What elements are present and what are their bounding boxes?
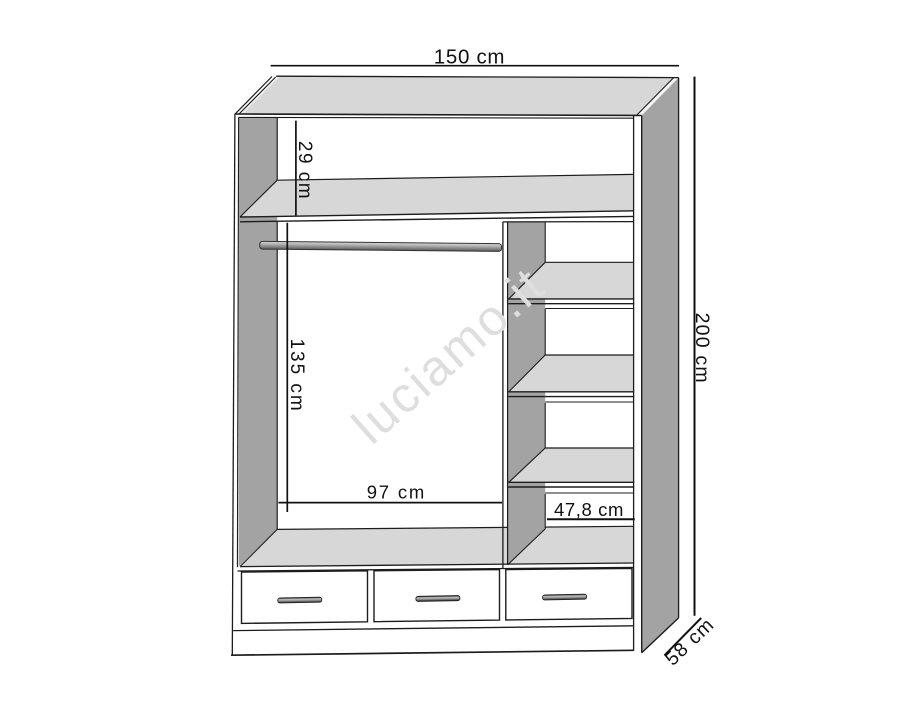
svg-text:150 cm: 150 cm [434, 45, 505, 68]
svg-text:29 cm: 29 cm [294, 141, 315, 200]
svg-text:47,8 cm: 47,8 cm [554, 499, 624, 520]
svg-text:97 cm: 97 cm [367, 482, 426, 503]
svg-text:200 cm: 200 cm [691, 313, 713, 384]
svg-text:135 cm: 135 cm [286, 338, 307, 412]
